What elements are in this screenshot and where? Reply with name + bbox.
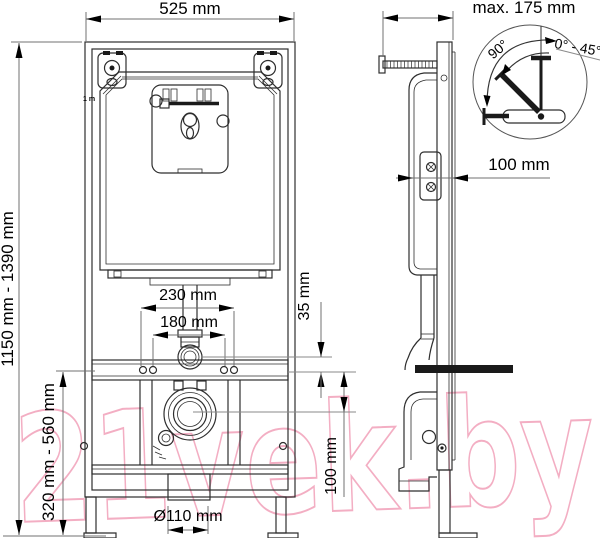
outlet-range-label: 320 mm - 560 mm bbox=[39, 383, 58, 521]
dim-width-525: 525 mm bbox=[86, 0, 294, 41]
dim-depth-max175: max. 175 mm bbox=[383, 0, 575, 57]
fixing-spacing-label: 180 mm bbox=[160, 314, 218, 331]
angle-sweep-label: 90° bbox=[485, 36, 512, 62]
flush-bend-width-label: 230 mm bbox=[159, 287, 217, 304]
dim-100-side: 100 mm bbox=[396, 155, 550, 182]
outlet-height-label: 100 mm bbox=[323, 437, 340, 495]
angle-range-label: 0° - 45° bbox=[553, 35, 600, 59]
outlet-diameter-label: Ø110 mm bbox=[153, 508, 222, 525]
dim-180: 180 mm bbox=[153, 314, 225, 366]
offset-label: 35 mm bbox=[296, 272, 313, 321]
watermark-text: 21vek.by bbox=[11, 364, 597, 538]
wall-bracket-right bbox=[254, 51, 282, 88]
wall-anchor-rod bbox=[379, 56, 437, 73]
cistern bbox=[100, 72, 280, 285]
flush-pipe-profile bbox=[405, 275, 434, 370]
wall-bracket-left bbox=[98, 51, 126, 88]
watermark: 21vek.by bbox=[11, 364, 597, 538]
mounting-shelf bbox=[415, 365, 513, 373]
frame-depth-label: 100 mm bbox=[488, 155, 549, 174]
height-range-label: 1150 mm - 1390 mm bbox=[0, 211, 17, 367]
bracket-angle-detail: 90° 0° - 45° bbox=[473, 25, 600, 139]
access-panel bbox=[150, 85, 229, 173]
tank-marker-label: 1 m bbox=[83, 96, 95, 103]
installation-drawing: 21vek.by bbox=[0, 0, 600, 538]
bolt-diagonal bbox=[501, 74, 539, 112]
width-label: 525 mm bbox=[159, 0, 220, 18]
max-depth-label: max. 175 mm bbox=[473, 0, 576, 17]
cistern-profile bbox=[409, 73, 441, 275]
